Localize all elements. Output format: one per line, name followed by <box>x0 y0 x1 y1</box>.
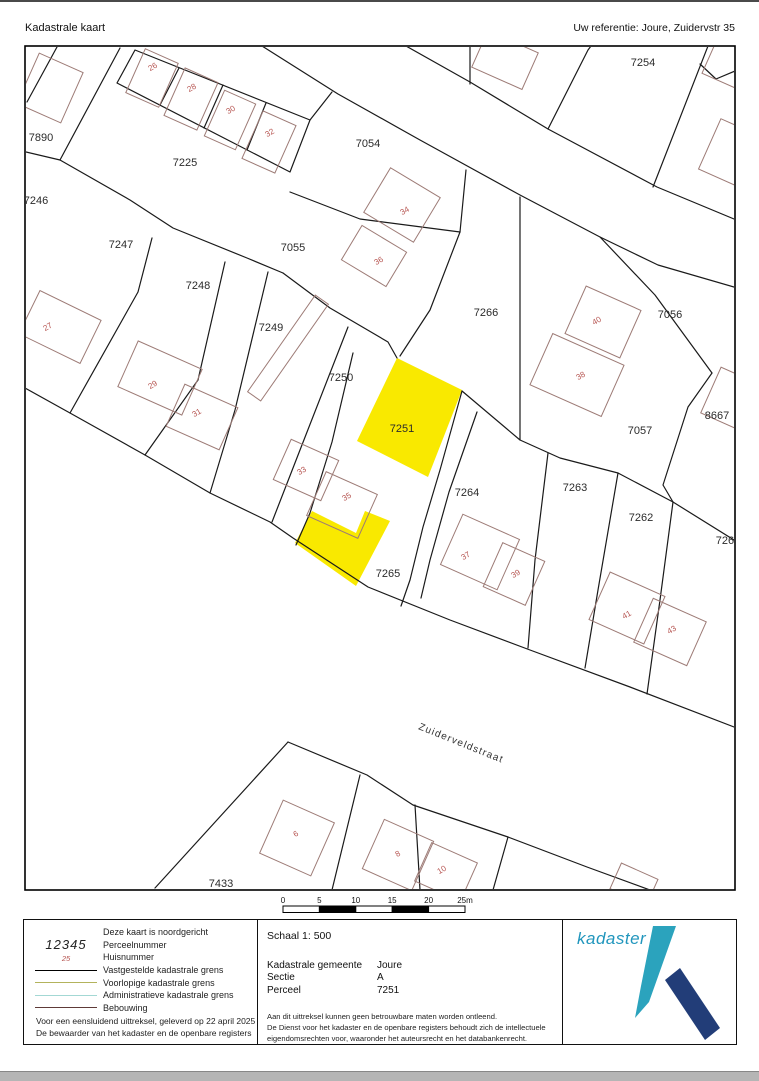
legend-label: Administratieve kadastrale grens <box>103 990 234 1000</box>
legend-label: Vastgestelde kadastrale grens <box>103 965 223 975</box>
house-number-label: 36 <box>373 254 386 267</box>
map-frame <box>25 46 735 890</box>
parcel-number-label: 7433 <box>209 878 233 890</box>
house-number-label: 37 <box>460 549 473 562</box>
parcel-boundaries <box>25 46 735 890</box>
legend-section: Deze kaart is noordgericht12345Perceelnu… <box>24 920 258 1044</box>
info-value: Joure <box>377 960 402 971</box>
building-outline <box>341 225 406 286</box>
parcel-number-label: 7890 <box>29 132 53 144</box>
building-outline <box>565 286 641 358</box>
legal-disclaimer: Aan dit uittreksel kunnen geen betrouwba… <box>267 1011 562 1044</box>
house-number-label: 26 <box>147 60 160 73</box>
legend-row: 25Huisnummer <box>24 951 257 964</box>
kadaster-logo: kadaster <box>563 920 736 1044</box>
parcel-number-label: 7247 <box>109 239 133 251</box>
parcel-number-label: 7266 <box>474 307 498 319</box>
house-number-label: 30 <box>225 103 238 116</box>
legend-label: Bebouwing <box>103 1003 148 1013</box>
parcel-number-label: 7262 <box>629 512 653 524</box>
street-name-label: Zuiderveldstraat <box>417 722 505 766</box>
scale-tick-label: 10 <box>351 896 360 905</box>
legend-row: Voorlopige kadastrale grens <box>24 976 257 989</box>
building-outline <box>589 572 665 644</box>
legend-sample-text: 25 <box>62 954 70 963</box>
house-numbers-group: 26283032343627293133353739403841436810 <box>42 60 679 876</box>
house-number-label: 41 <box>621 608 634 621</box>
legend-sample-line <box>35 970 97 971</box>
parcel-number-label: 7254 <box>631 57 655 69</box>
house-number-label: 39 <box>510 567 523 580</box>
parcel-info-row: SectieA <box>267 972 562 985</box>
building-outline <box>19 291 101 364</box>
building-outline <box>17 53 83 123</box>
info-label: Sectie <box>267 972 377 983</box>
building-outline <box>118 341 202 415</box>
building-outline <box>440 514 519 589</box>
scale-bar: 0510152025m <box>281 896 473 913</box>
info-value: 7251 <box>377 985 399 996</box>
parcel-number-label: 7264 <box>455 487 479 499</box>
legend-sample-line <box>35 982 97 983</box>
building-outline <box>699 119 758 186</box>
footer-panel: Deze kaart is noordgericht12345Perceelnu… <box>23 919 737 1045</box>
info-label: Kadastrale gemeente <box>267 960 377 971</box>
scale-tick-label: 20 <box>424 896 433 905</box>
house-number-label: 43 <box>666 623 679 636</box>
legend-sample-line <box>35 1007 97 1008</box>
parcel-number-label: 7250 <box>329 372 353 384</box>
scale-tick-label: 0 <box>281 896 286 905</box>
info-value: A <box>377 972 384 983</box>
parcel-info-row: Perceel7251 <box>267 984 562 997</box>
house-number-label: 28 <box>186 81 199 94</box>
building-outline <box>472 31 539 90</box>
house-number-label: 8 <box>394 849 403 859</box>
parcel-number-label: 7056 <box>658 309 682 321</box>
legend-sample-line <box>35 995 97 996</box>
house-number-label: 32 <box>264 126 277 139</box>
building-outline <box>364 168 440 242</box>
legend-label: Perceelnummer <box>103 940 167 950</box>
parcel-number-label: 7263 <box>563 482 587 494</box>
house-number-label: 6 <box>292 829 301 839</box>
legend-label: Deze kaart is noordgericht <box>103 927 208 937</box>
house-number-label: 35 <box>341 490 354 503</box>
legend-label: Huisnummer <box>103 952 154 962</box>
street-name: Zuiderveldstraat <box>417 722 505 766</box>
legend-row: Bebouwing <box>24 1002 257 1015</box>
parcel-number-label: 7246 <box>24 195 48 207</box>
house-number-label: 34 <box>399 204 412 217</box>
scale-label: Schaal 1: 500 <box>267 930 562 942</box>
buildings-outlines <box>17 31 759 905</box>
building-outline <box>248 295 329 401</box>
extract-note: Voor een eensluidend uittreksel, gelever… <box>36 1016 255 1039</box>
parcel-number-label: 7261 <box>716 535 740 547</box>
building-outline <box>126 49 178 107</box>
parcel-number-label: 7248 <box>186 280 210 292</box>
parcel-number-label: 7054 <box>356 138 380 150</box>
parcel-number-label: 8667 <box>705 410 729 422</box>
legend-row: Administratieve kadastrale grens <box>24 989 257 1002</box>
house-number-label: 10 <box>436 863 449 876</box>
cadastral-map: 7890722570547254724672477055724872497250… <box>0 0 759 915</box>
scale-tick-label: 5 <box>317 896 322 905</box>
parcel-number-label: 7251 <box>390 423 414 435</box>
parcel-info-row: Kadastrale gemeenteJoure <box>267 959 562 972</box>
building-outline <box>166 384 238 450</box>
legend-label: Voorlopige kadastrale grens <box>103 978 215 988</box>
kadaster-wordmark: kadaster <box>577 929 646 949</box>
parcel-number-label: 7265 <box>376 568 400 580</box>
house-number-label: 27 <box>42 320 55 333</box>
parcel-info-section: Schaal 1: 500 Kadastrale gemeenteJoureSe… <box>258 920 563 1044</box>
parcel-number-label: 7225 <box>173 157 197 169</box>
house-number-label: 31 <box>191 406 204 419</box>
parcel-number-label: 7055 <box>281 242 305 254</box>
parcel-number-label: 7057 <box>628 425 652 437</box>
house-number-label: 29 <box>147 378 160 391</box>
scale-tick-label: 25m <box>457 896 473 905</box>
scale-tick-label: 15 <box>388 896 397 905</box>
info-label: Perceel <box>267 985 377 996</box>
house-number-label: 38 <box>575 369 588 382</box>
highlighted-parcel-7251 <box>295 358 462 586</box>
house-number-label: 33 <box>296 464 309 477</box>
kadaster-logo-stroke-icon <box>665 968 720 1040</box>
parcel-number-label: 7249 <box>259 322 283 334</box>
house-number-label: 40 <box>591 314 604 327</box>
